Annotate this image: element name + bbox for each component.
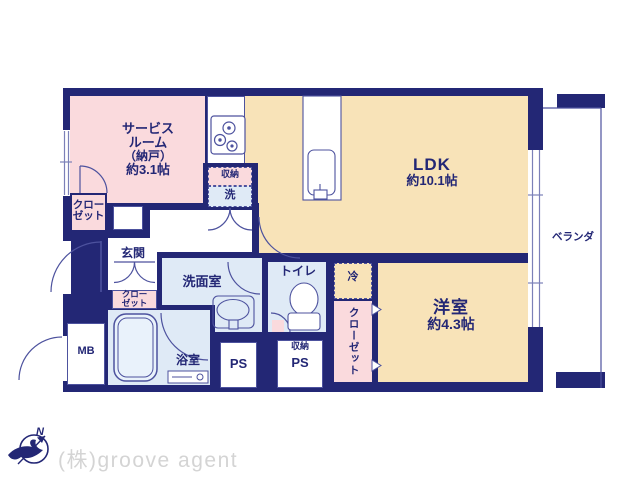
bathroom — [108, 310, 210, 385]
kitchen-storage-label: 収納 — [208, 170, 252, 180]
balcony-bottom-wall — [556, 372, 605, 388]
closet-entrance-label: クロー ゼット — [112, 290, 157, 308]
floor-plan: サービス ルーム （納戸） 約3.1帖 LDK 約10.1帖 洋室 約4.3帖 … — [0, 0, 640, 480]
entrance-cabinet — [113, 206, 143, 230]
balcony-outline — [543, 108, 601, 388]
washroom-label: 洗面室 — [166, 275, 238, 289]
meter-box-label: MB — [67, 346, 105, 358]
hallway — [150, 210, 252, 252]
closet-west-label: クロー ゼット — [70, 200, 107, 223]
compass-icon — [8, 435, 48, 464]
mb-door-arc — [19, 337, 62, 380]
entrance-door-opening — [61, 241, 71, 294]
fridge-label: 冷 — [334, 272, 372, 284]
company-watermark: (株)groove agent — [58, 444, 238, 474]
compass-north-label: N — [33, 426, 47, 438]
toilet-corner — [272, 320, 284, 332]
ps-storage-label: 収納 — [279, 342, 321, 352]
closet-east-label: クローゼット — [340, 303, 366, 380]
laundry-label: 洗 — [208, 190, 252, 202]
balcony-top-wall — [557, 94, 605, 108]
western-room-label: 洋室 約4.3帖 — [391, 299, 511, 332]
washroom-sink-area — [215, 305, 262, 332]
pipe-space-2-label: PS — [279, 356, 321, 370]
toilet-label: トイレ — [276, 265, 320, 278]
kitchen-counter — [207, 96, 245, 165]
balcony-window-opening — [528, 150, 543, 327]
pipe-space-1-label: PS — [220, 357, 257, 371]
bathroom-label: 浴室 — [167, 354, 209, 367]
service-room-label: サービス ルーム （納戸） 約3.1帖 — [88, 122, 208, 177]
ldk-label: LDK 約10.1帖 — [372, 156, 492, 188]
ldk-room-lower — [259, 203, 528, 253]
veranda-label: ベランダ — [545, 232, 601, 243]
entrance-label: 玄関 — [104, 247, 162, 260]
